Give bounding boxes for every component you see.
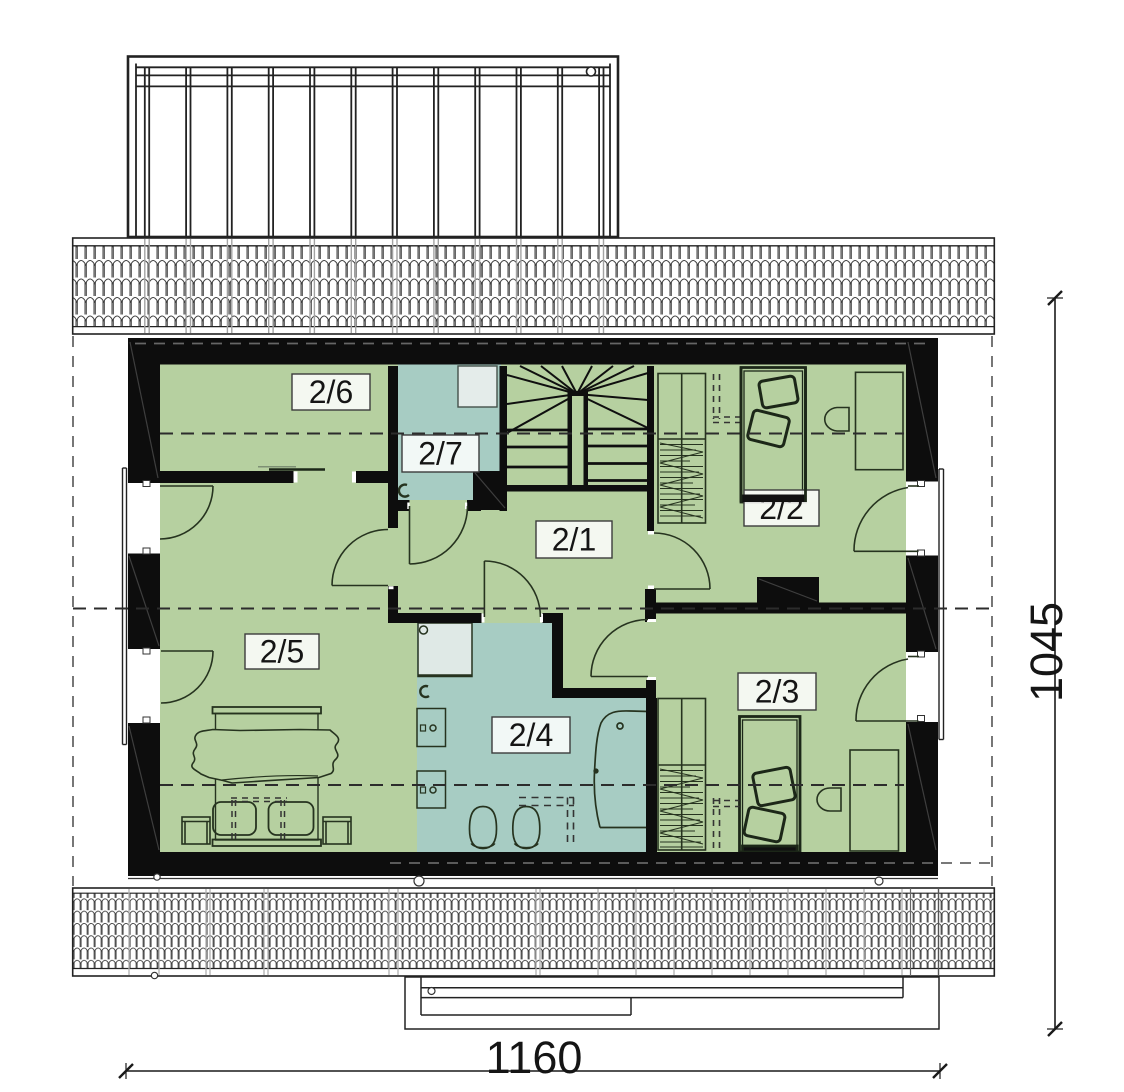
svg-text:2/6: 2/6 xyxy=(309,374,353,410)
svg-text:2/5: 2/5 xyxy=(260,634,304,670)
svg-text:2/1: 2/1 xyxy=(552,522,596,558)
svg-text:1160: 1160 xyxy=(486,1032,583,1083)
svg-text:2/3: 2/3 xyxy=(755,674,799,710)
svg-text:2/4: 2/4 xyxy=(509,717,553,753)
svg-text:1045: 1045 xyxy=(1021,602,1072,702)
svg-text:2/7: 2/7 xyxy=(418,436,462,472)
